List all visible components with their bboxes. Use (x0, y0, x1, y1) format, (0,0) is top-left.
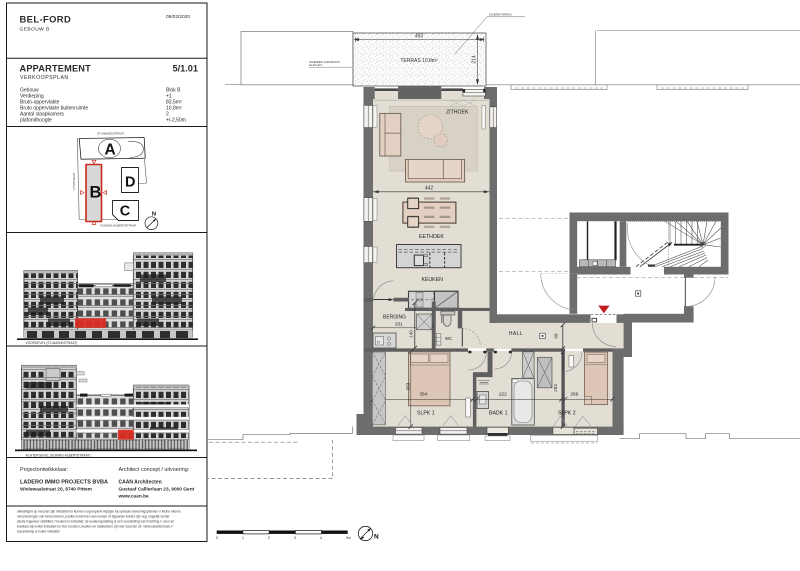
svg-text:VERKOOPSPLAN: VERKOOPSPLAN (20, 75, 69, 81)
svg-text:N: N (374, 534, 379, 541)
svg-text:222: 222 (499, 392, 507, 397)
svg-text:140: 140 (409, 330, 414, 338)
svg-text:VOORGEVEL (ST-AMANDSTRAAT): VOORGEVEL (ST-AMANDSTRAAT) (26, 341, 78, 345)
svg-text:ZITHOEK: ZITHOEK (446, 110, 469, 116)
svg-text:SLPK 2: SLPK 2 (558, 411, 576, 417)
svg-text:tussenkamp is louter indicatie: tussenkamp is louter indicatief (17, 530, 60, 534)
svg-text:CAAN Architecten: CAAN Architecten (119, 480, 162, 486)
svg-text:0: 0 (216, 536, 218, 540)
svg-text:LYSSTRAAT: LYSSTRAAT (72, 172, 76, 189)
svg-text:BADK 1: BADK 1 (489, 411, 508, 417)
svg-text:SLPK 1: SLPK 1 (417, 411, 435, 417)
svg-text:98: 98 (554, 333, 559, 339)
svg-text:afmetingen op het plan zijn in: afmetingen op het plan zijn indicatief e… (17, 510, 181, 514)
svg-text:5/1.01: 5/1.01 (172, 64, 198, 74)
svg-text:N: N (152, 211, 156, 217)
svg-text:C: C (120, 204, 131, 220)
svg-text:493: 493 (415, 34, 424, 40)
svg-text:SCHERM TERRAS: SCHERM TERRAS (489, 13, 512, 17)
svg-text:ST-AMANDSTRAAT: ST-AMANDSTRAAT (97, 132, 124, 136)
svg-text:2: 2 (268, 536, 270, 540)
svg-text:EETHOEK: EETHOEK (419, 234, 444, 240)
svg-text:plafondhoogte: plafondhoogte (20, 118, 52, 124)
svg-text:A: A (105, 142, 116, 159)
svg-text:GLAS HGT: GLAS HGT (309, 63, 323, 67)
svg-text:283: 283 (553, 384, 558, 392)
svg-text:BERGING: BERGING (383, 315, 406, 321)
svg-text:231: 231 (395, 322, 403, 327)
svg-text:214: 214 (472, 55, 478, 64)
svg-text:WC: WC (445, 336, 452, 341)
svg-text:Wielewaalstraat 20, 8740 Pitte: Wielewaalstraat 20, 8740 Pittem (20, 487, 92, 493)
svg-text:Architect concept / uitvoering: Architect concept / uitvoering: (119, 467, 190, 473)
svg-text:APPARTEMENT: APPARTEMENT (20, 64, 92, 74)
svg-text:+/-2,50m: +/-2,50m (166, 118, 186, 124)
svg-text:BEL-FORD: BEL-FORD (20, 14, 72, 25)
svg-text:koelkast zijn enkel indicatief: koelkast zijn enkel indicatief en niet v… (17, 525, 173, 529)
svg-text:1: 1 (242, 536, 244, 540)
svg-text:B: B (90, 184, 102, 202)
svg-text:Gustaaf Callierlaan 23, 9000 G: Gustaaf Callierlaan 23, 9000 Gent (119, 487, 195, 493)
svg-text:354: 354 (420, 392, 428, 397)
svg-text:LADERO IMMO PROJECTS BVBA: LADERO IMMO PROJECTS BVBA (20, 480, 108, 486)
svg-text:ACHTERGEVEL (KONING-ALBERTSTRA: ACHTERGEVEL (KONING-ALBERTSTRAAT) (26, 454, 91, 458)
svg-text:4: 4 (320, 536, 322, 540)
svg-text:HALL: HALL (509, 331, 523, 337)
svg-text:GEBOUW B: GEBOUW B (20, 27, 50, 33)
svg-text:5m: 5m (346, 536, 351, 540)
svg-text:05/02/2020: 05/02/2020 (166, 14, 190, 20)
svg-text:verschuivingen van binnenmuren: verschuivingen van binnenmuren, positie … (17, 515, 170, 519)
svg-text:studie ingenieur stabiliteit: studie ingenieur stabiliteit // keuken i… (17, 520, 174, 524)
svg-text:TERRAS 10,8m²: TERRAS 10,8m² (400, 58, 438, 64)
svg-text:KEUKEN: KEUKEN (422, 277, 444, 283)
svg-text:442: 442 (425, 186, 434, 192)
svg-text:D: D (125, 175, 135, 191)
svg-text:D: D (377, 340, 380, 345)
svg-text:www.caan.be: www.caan.be (118, 494, 150, 500)
svg-text:3: 3 (294, 536, 296, 540)
svg-text:269: 269 (571, 392, 579, 397)
svg-text:353: 353 (406, 382, 411, 390)
svg-text:Projectontwikkelaar:: Projectontwikkelaar: (20, 467, 68, 473)
svg-text:KONING-ALBERTSTRAAT: KONING-ALBERTSTRAAT (100, 223, 136, 227)
